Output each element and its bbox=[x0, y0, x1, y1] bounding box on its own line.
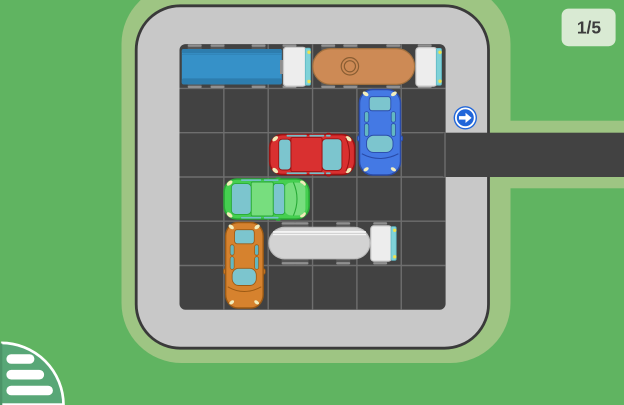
svg-text:1/5: 1/5 bbox=[577, 17, 602, 37]
